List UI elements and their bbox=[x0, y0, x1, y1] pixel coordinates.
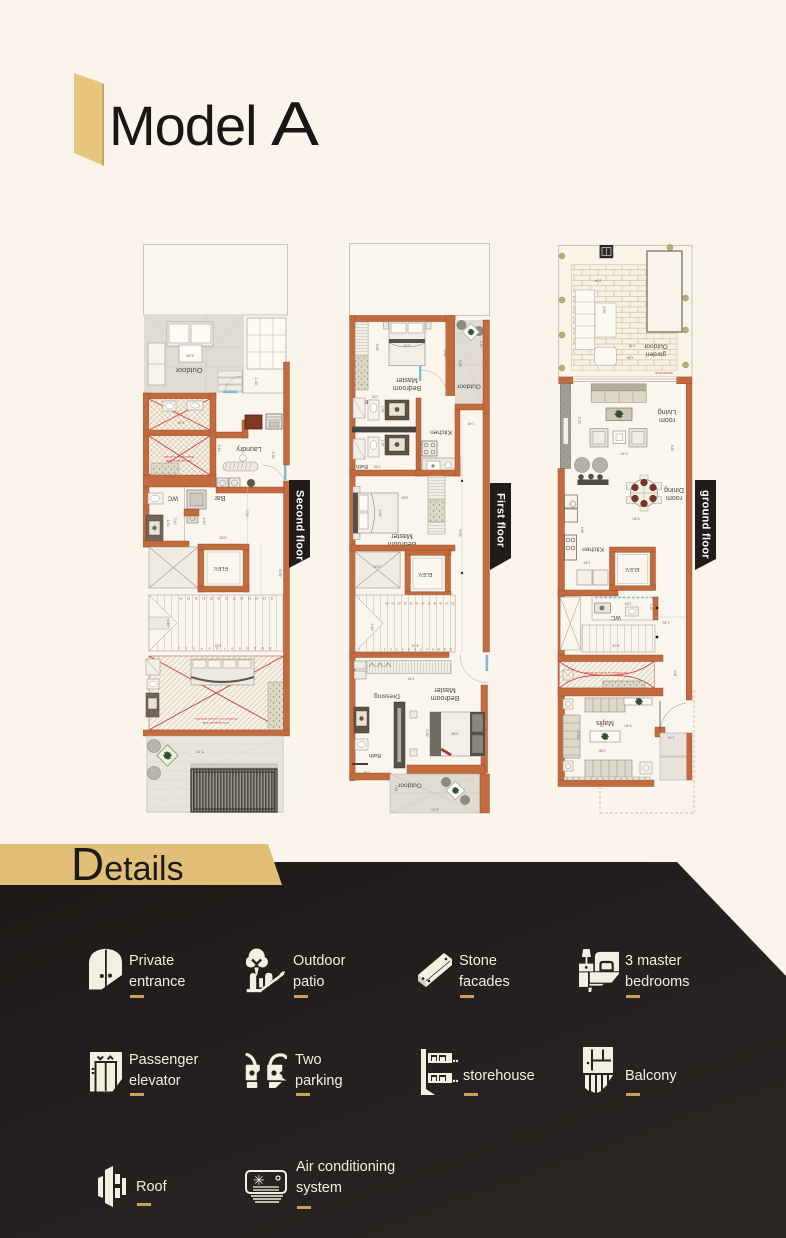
svg-text:1.40: 1.40 bbox=[479, 341, 483, 348]
svg-text:3.15: 3.15 bbox=[217, 445, 221, 452]
svg-text:Master: Master bbox=[396, 376, 418, 383]
svg-text:2.50: 2.50 bbox=[372, 395, 379, 399]
svg-text:garden: garden bbox=[646, 350, 667, 357]
svg-text:2.40: 2.40 bbox=[584, 561, 591, 565]
svg-text:18: 18 bbox=[225, 597, 229, 601]
svg-text:2.40: 2.40 bbox=[173, 518, 177, 525]
svg-text:the Provision for private stor: the Provision for private storehouse bbox=[584, 671, 628, 675]
svg-text:3.00: 3.00 bbox=[375, 344, 379, 351]
svg-text:12: 12 bbox=[261, 647, 265, 651]
svg-text:19: 19 bbox=[217, 597, 221, 601]
svg-text:1.40: 1.40 bbox=[166, 520, 170, 527]
svg-text:2.50: 2.50 bbox=[245, 510, 249, 517]
svg-text:1.10: 1.10 bbox=[649, 604, 653, 611]
svg-text:Bedroom: Bedroom bbox=[393, 384, 422, 391]
svg-text:20: 20 bbox=[209, 597, 213, 601]
svg-text:2.45: 2.45 bbox=[625, 602, 632, 606]
svg-text:✳: ✳ bbox=[253, 1172, 265, 1188]
svg-text:1.45: 1.45 bbox=[381, 440, 385, 447]
svg-text:5.40: 5.40 bbox=[633, 516, 640, 520]
svg-text:11: 11 bbox=[253, 647, 256, 651]
svg-text:13: 13 bbox=[263, 597, 267, 601]
svg-text:can't equipped Sofa: can't equipped Sofa bbox=[202, 721, 229, 725]
svg-text:10: 10 bbox=[437, 648, 441, 652]
svg-text:Dressing: Dressing bbox=[374, 692, 400, 699]
svg-text:24: 24 bbox=[385, 602, 389, 606]
svg-text:16: 16 bbox=[240, 597, 244, 601]
svg-text:5.40: 5.40 bbox=[408, 677, 415, 681]
svg-text:Bar: Bar bbox=[214, 494, 226, 501]
svg-text:15: 15 bbox=[247, 597, 251, 601]
svg-text:2.90: 2.90 bbox=[271, 452, 275, 459]
svg-text:4.50: 4.50 bbox=[425, 730, 429, 737]
svg-text:14: 14 bbox=[445, 602, 449, 606]
svg-text:3.90: 3.90 bbox=[220, 535, 227, 539]
svg-text:5.40: 5.40 bbox=[625, 723, 632, 727]
svg-text:2.04: 2.04 bbox=[595, 278, 602, 282]
svg-text:Majlis: Majlis bbox=[596, 719, 614, 726]
svg-text:Outdoor: Outdoor bbox=[397, 781, 421, 788]
svg-text:3.75: 3.75 bbox=[577, 417, 581, 424]
svg-text:Outdoor: Outdoor bbox=[175, 366, 203, 375]
svg-text:4.01: 4.01 bbox=[412, 643, 419, 647]
svg-text:1.40: 1.40 bbox=[468, 421, 475, 425]
svg-text:3.90: 3.90 bbox=[404, 343, 411, 347]
svg-text:13: 13 bbox=[268, 647, 272, 651]
svg-text:12: 12 bbox=[449, 648, 453, 652]
svg-text:21: 21 bbox=[403, 602, 407, 606]
svg-text:Provision for a private bedroo: Provision for a private bedroom bbox=[195, 717, 237, 721]
svg-text:3.08: 3.08 bbox=[673, 670, 677, 677]
svg-text:18: 18 bbox=[421, 602, 425, 606]
svg-text:20: 20 bbox=[409, 602, 413, 606]
svg-text:Bathroom for a private: Bathroom for a private bbox=[164, 455, 194, 459]
svg-text:10: 10 bbox=[245, 647, 249, 651]
svg-text:room: room bbox=[666, 494, 682, 501]
svg-text:Master: Master bbox=[434, 686, 456, 693]
svg-text:17: 17 bbox=[427, 602, 431, 606]
svg-text:4.90: 4.90 bbox=[580, 527, 584, 534]
svg-text:ELEV.: ELEV. bbox=[417, 571, 433, 577]
svg-text:3.80: 3.80 bbox=[402, 495, 409, 499]
svg-text:11: 11 bbox=[443, 648, 446, 652]
svg-text:3.50: 3.50 bbox=[576, 732, 580, 739]
svg-text:19: 19 bbox=[415, 602, 419, 606]
svg-text:6.85: 6.85 bbox=[670, 445, 674, 452]
svg-text:3.00: 3.00 bbox=[378, 510, 382, 517]
svg-text:Bath: Bath bbox=[369, 752, 381, 758]
svg-text:1.50: 1.50 bbox=[394, 785, 398, 792]
svg-text:3.80: 3.80 bbox=[186, 353, 193, 357]
svg-text:room: room bbox=[659, 416, 675, 423]
svg-text:Bath: Bath bbox=[356, 463, 368, 469]
svg-text:Bedroom: Bedroom bbox=[431, 694, 460, 701]
svg-text:Kitchen: Kitchen bbox=[582, 545, 604, 552]
svg-text:16: 16 bbox=[433, 602, 437, 606]
svg-text:WC: WC bbox=[167, 494, 178, 501]
svg-text:3.88: 3.88 bbox=[452, 731, 459, 735]
svg-text:2.00: 2.00 bbox=[374, 564, 381, 568]
svg-text:14: 14 bbox=[255, 597, 259, 601]
svg-text:1.45: 1.45 bbox=[254, 377, 258, 384]
svg-text:23: 23 bbox=[187, 597, 191, 601]
svg-text:1.40: 1.40 bbox=[663, 620, 670, 624]
svg-text:5.55: 5.55 bbox=[602, 307, 606, 314]
svg-text:Dining: Dining bbox=[664, 486, 684, 493]
svg-text:24: 24 bbox=[179, 597, 183, 601]
svg-text:4.34: 4.34 bbox=[627, 356, 634, 360]
svg-text:15: 15 bbox=[439, 602, 443, 606]
svg-text:Outdoor: Outdoor bbox=[643, 342, 667, 349]
svg-text:WC: WC bbox=[610, 614, 621, 620]
svg-text:5.20: 5.20 bbox=[196, 749, 203, 753]
svg-text:23: 23 bbox=[391, 602, 395, 606]
svg-text:21: 21 bbox=[202, 597, 206, 601]
svg-text:3.25: 3.25 bbox=[458, 360, 462, 367]
svg-text:13: 13 bbox=[451, 602, 455, 606]
svg-text:17: 17 bbox=[232, 597, 236, 601]
svg-text:Laundry: Laundry bbox=[236, 445, 262, 452]
svg-text:2.80: 2.80 bbox=[599, 748, 606, 752]
svg-text:Master: Master bbox=[391, 532, 413, 539]
svg-text:22: 22 bbox=[397, 602, 401, 606]
svg-text:3.70: 3.70 bbox=[432, 807, 439, 811]
svg-text:Kitchen: Kitchen bbox=[430, 428, 452, 435]
svg-text:12: 12 bbox=[270, 597, 274, 601]
svg-text:Outdoor: Outdoor bbox=[456, 382, 480, 389]
svg-text:2.40: 2.40 bbox=[370, 624, 374, 631]
svg-text:Living: Living bbox=[658, 408, 676, 415]
svg-text:can't equipped Sofa: can't equipped Sofa bbox=[165, 459, 192, 463]
svg-text:5.40: 5.40 bbox=[621, 451, 628, 455]
svg-text:1.40: 1.40 bbox=[668, 736, 675, 740]
svg-text:2.50: 2.50 bbox=[374, 465, 381, 469]
svg-text:WOODLAND: WOODLAND bbox=[654, 371, 673, 375]
svg-text:2.40: 2.40 bbox=[202, 518, 206, 525]
svg-text:ELEV.: ELEV. bbox=[212, 565, 228, 571]
svg-text:1.45: 1.45 bbox=[381, 406, 385, 413]
svg-text:2.60: 2.60 bbox=[178, 420, 185, 424]
svg-text:2.40: 2.40 bbox=[166, 620, 170, 627]
svg-text:6.99: 6.99 bbox=[278, 570, 282, 577]
svg-text:22: 22 bbox=[194, 597, 198, 601]
svg-text:ELEV.: ELEV. bbox=[624, 566, 640, 572]
svg-text:9.93: 9.93 bbox=[458, 530, 462, 537]
svg-text:4.03: 4.03 bbox=[613, 643, 620, 647]
svg-text:5.40: 5.40 bbox=[629, 344, 636, 348]
